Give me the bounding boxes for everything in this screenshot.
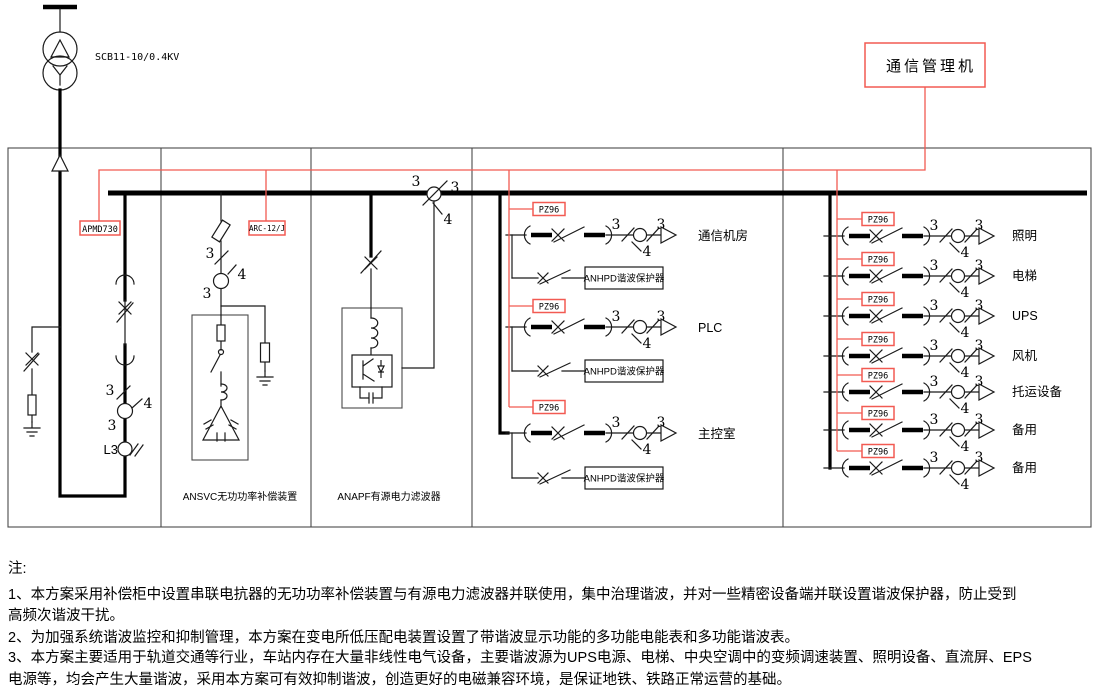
- ct-signal-wire: [402, 201, 434, 368]
- feeder-plc: [506, 309, 676, 352]
- transformer: SCB11-10/0.4KV: [43, 7, 179, 90]
- lamp-circle-icon: [118, 442, 132, 456]
- feeder-spare-1: [824, 412, 994, 455]
- ct-slash-icon: [132, 399, 142, 408]
- feeder-control-room: [506, 415, 676, 458]
- ct-wire-count: 4: [144, 396, 153, 412]
- metered-feeder-section: 通信机房 PLC 主控室: [500, 194, 748, 489]
- pz96-tag: [862, 253, 894, 266]
- svc-meter-circle-icon: [214, 274, 229, 289]
- ct-phase-count-2: 3: [108, 418, 117, 434]
- wye-winding-icon: [53, 66, 67, 85]
- ct-wire-count: 4: [444, 212, 453, 228]
- load-label: 电梯: [1012, 269, 1037, 283]
- notes-line: 高频次谐波干扰。: [8, 607, 124, 624]
- feeder-comm-room: [506, 217, 676, 260]
- contactor-blade-icon: [211, 355, 220, 372]
- arrester-ground-icon: [257, 371, 273, 385]
- capacitor-delta-icon: [203, 406, 239, 440]
- pz96-tag: [862, 407, 894, 420]
- arrester-branch-wire: [221, 306, 265, 371]
- ct-phase-count: 3: [106, 383, 115, 399]
- pz96-tag: [862, 369, 894, 382]
- pt-ground-icon: [24, 422, 40, 436]
- ct-phase-count-2: 3: [203, 286, 212, 302]
- notes: 注: 1、本方案采用补偿柜中设置串联电抗器的无功功率补偿装置与有源电力滤波器并联…: [8, 560, 1032, 688]
- load-label: 备用: [1012, 461, 1037, 475]
- feeder-elevator: [824, 258, 994, 301]
- filter-reactor-icon: [371, 318, 378, 348]
- dc-capacitor-icon: [360, 387, 382, 403]
- notes-line: 电源等，均会产生大量谐波，采用本方案可有效抑制谐波，创造更好的电磁兼容环境，是保…: [8, 670, 791, 688]
- pz96-tag: [862, 293, 894, 306]
- load-label: UPS: [1012, 309, 1038, 323]
- pz96-tag: [533, 401, 565, 414]
- apf-section-label: ANAPF有源电力滤波器: [337, 490, 440, 503]
- arrester-icon: [261, 343, 270, 362]
- series-reactor-icon: [221, 384, 227, 400]
- comm-network: 通信管理机 APMD730 ARC-12/J: [80, 43, 985, 458]
- transformer-label: SCB11-10/0.4KV: [95, 52, 179, 63]
- apf-section: 3 3 4 ANAPF有源电力滤波器: [337, 174, 459, 503]
- inner-fuse-icon: [217, 325, 225, 341]
- load-label: 照明: [1012, 229, 1037, 243]
- pt-switch-x-icon: [26, 353, 38, 365]
- incomer-main-wire: [60, 90, 125, 496]
- feeder-ups: [824, 298, 994, 341]
- pz96-tag: [533, 203, 565, 216]
- svc-section: 3 4 3 ANSVC无功功率补偿装置: [183, 193, 297, 503]
- fuse-switch-icon: [212, 220, 230, 242]
- load-label: PLC: [698, 321, 722, 335]
- feeder-lighting: [824, 218, 994, 261]
- delta-winding-icon: [51, 40, 69, 57]
- incomer-meter-circle-icon: [118, 404, 133, 419]
- feeder-spare-2: [824, 450, 994, 493]
- load-label: 通信机房: [698, 228, 748, 243]
- fuse-icon: [28, 395, 36, 415]
- load-label: 备用: [1012, 423, 1037, 437]
- load-label: 风机: [1012, 349, 1038, 363]
- apmd730-label: APMD730: [82, 225, 118, 235]
- lamp-label: L3: [104, 442, 118, 457]
- diagram-canvas: 3 3 4 PZ96 ANHPD谐波保护器: [0, 0, 1096, 695]
- load-label: 主控室: [698, 426, 736, 441]
- svc-section-label: ANSVC无功功率补偿装置: [183, 490, 297, 503]
- distribution-feeder-section: 照明 电梯 UPS 风机 托运设备 备用 备用: [824, 194, 1063, 493]
- ct-wire-count: 4: [238, 267, 247, 283]
- protector-branch-2: [512, 360, 665, 382]
- notes-line: 1、本方案采用补偿柜中设置串联电抗器的无功功率补偿装置与有源电力滤波器并联使用，…: [8, 585, 1017, 603]
- section-riser-wire: [500, 194, 508, 433]
- ct-phase-count: 3: [206, 246, 215, 262]
- pz96-tag: [862, 333, 894, 346]
- notes-line: 3、本方案主要适用于轨道交通等行业，车站内存在大量非线性电气设备，主要谐波源为U…: [8, 648, 1032, 666]
- pz96-tag: [862, 445, 894, 458]
- pz96-tag: [533, 300, 565, 313]
- load-label: 托运设备: [1012, 384, 1063, 399]
- protector-branch-3: [512, 467, 665, 489]
- notes-line: 2、为加强系统谐波监控和抑制管理，本方案在变电所低压配电装置设置了带谐波显示功能…: [8, 628, 799, 646]
- protector-branch-1: [512, 267, 665, 289]
- ct-slash-icon: [228, 265, 236, 274]
- incomer-section: 3 4 3 L3: [24, 90, 153, 496]
- arc12j-label: ARC-12/J: [249, 224, 285, 233]
- capacitor-plates-icon: [204, 420, 238, 441]
- cabinet-dividers: [161, 148, 783, 527]
- single-line-diagram-page: 3 3 4 PZ96 ANHPD谐波保护器: [0, 0, 1096, 695]
- comm-manager-label: 通信管理机: [886, 58, 976, 75]
- ct-phase-count-2: 3: [451, 180, 460, 196]
- notes-heading: 注:: [8, 560, 27, 577]
- ct-phase-count: 3: [412, 174, 421, 190]
- pz96-tag: [862, 213, 894, 226]
- incoming-arrow-icon: [52, 155, 68, 171]
